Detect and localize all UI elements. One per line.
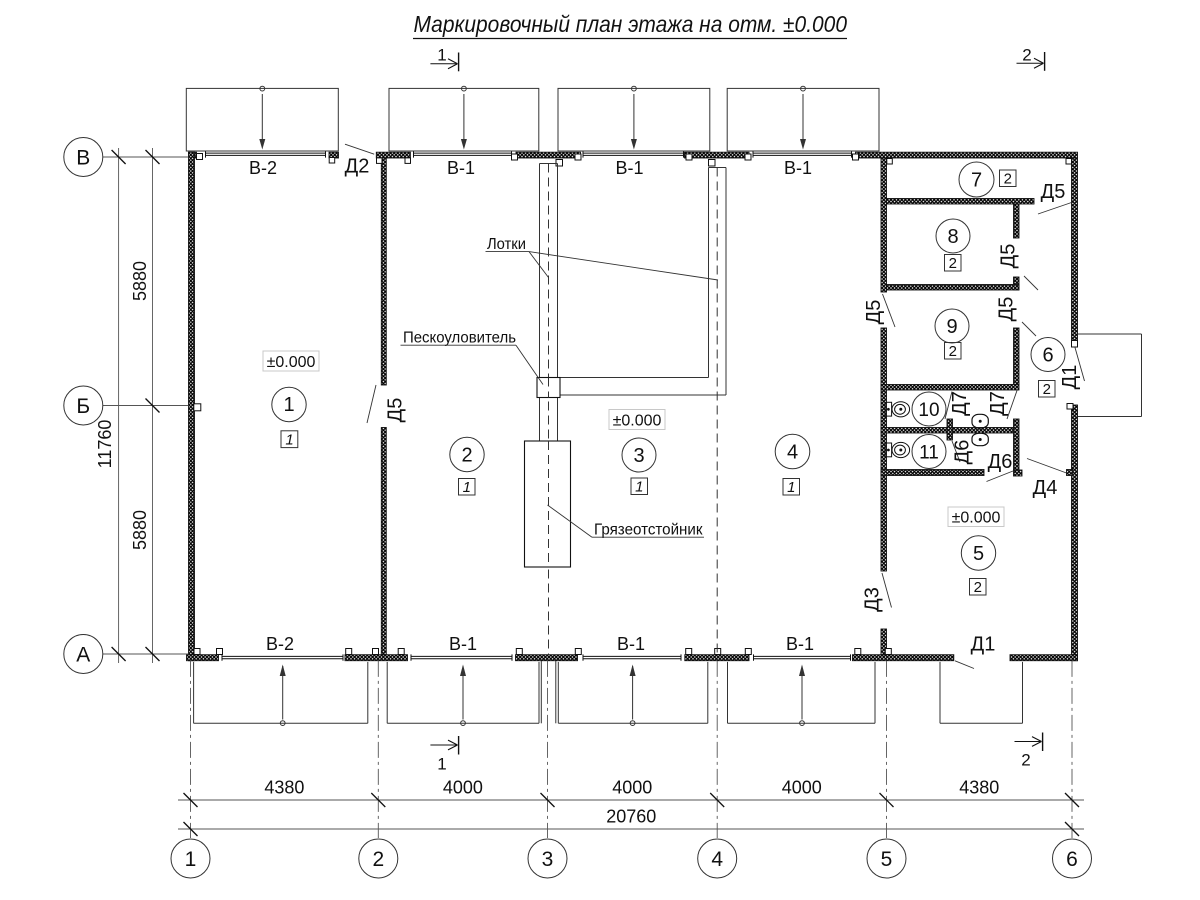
svg-text:В-1: В-1 bbox=[617, 634, 645, 654]
svg-text:3: 3 bbox=[542, 848, 554, 871]
svg-text:2: 2 bbox=[1043, 381, 1051, 398]
svg-text:6: 6 bbox=[1042, 345, 1053, 367]
svg-text:Д6: Д6 bbox=[952, 440, 974, 465]
svg-text:1: 1 bbox=[437, 46, 446, 65]
svg-text:Д5: Д5 bbox=[998, 244, 1020, 269]
svg-text:11760: 11760 bbox=[95, 420, 115, 469]
svg-text:В-1: В-1 bbox=[786, 634, 814, 654]
svg-text:4: 4 bbox=[711, 848, 723, 871]
svg-text:1: 1 bbox=[635, 479, 643, 496]
svg-text:4000: 4000 bbox=[782, 778, 822, 798]
svg-text:В-1: В-1 bbox=[784, 158, 812, 178]
svg-text:Д5: Д5 bbox=[996, 297, 1018, 322]
svg-text:1: 1 bbox=[185, 848, 197, 871]
svg-text:1: 1 bbox=[787, 479, 795, 496]
svg-text:1: 1 bbox=[437, 755, 446, 774]
svg-text:1: 1 bbox=[463, 479, 471, 496]
svg-text:4000: 4000 bbox=[612, 778, 652, 798]
svg-text:Пескоуловитель: Пескоуловитель bbox=[403, 330, 516, 347]
svg-text:6: 6 bbox=[1066, 848, 1078, 871]
svg-text:2: 2 bbox=[949, 255, 957, 272]
svg-text:Д4: Д4 bbox=[1033, 477, 1058, 499]
svg-text:В-1: В-1 bbox=[615, 158, 643, 178]
svg-text:В-2: В-2 bbox=[266, 634, 294, 654]
svg-text:7: 7 bbox=[971, 170, 982, 192]
svg-text:В-2: В-2 bbox=[249, 158, 277, 178]
svg-text:1: 1 bbox=[283, 394, 294, 416]
svg-text:2: 2 bbox=[1022, 46, 1031, 65]
svg-text:Д2: Д2 bbox=[345, 156, 370, 178]
svg-text:10: 10 bbox=[918, 400, 939, 421]
svg-text:Д5: Д5 bbox=[863, 300, 885, 325]
svg-text:4000: 4000 bbox=[443, 778, 483, 798]
svg-text:5880: 5880 bbox=[130, 261, 150, 301]
svg-text:Д6: Д6 bbox=[988, 451, 1013, 473]
svg-text:Д5: Д5 bbox=[385, 398, 407, 423]
svg-text:2: 2 bbox=[1021, 751, 1030, 770]
svg-text:9: 9 bbox=[946, 316, 957, 338]
svg-text:Лотки: Лотки bbox=[487, 236, 526, 253]
svg-text:Д7: Д7 bbox=[987, 391, 1009, 416]
svg-text:5: 5 bbox=[881, 848, 893, 871]
svg-text:1: 1 bbox=[285, 431, 293, 448]
svg-text:5: 5 bbox=[973, 543, 984, 565]
svg-text:В-1: В-1 bbox=[449, 634, 477, 654]
svg-text:5880: 5880 bbox=[130, 510, 150, 550]
svg-text:2: 2 bbox=[974, 579, 982, 596]
svg-text:±0.000: ±0.000 bbox=[267, 354, 316, 371]
svg-text:8: 8 bbox=[947, 226, 958, 248]
svg-text:4: 4 bbox=[787, 442, 798, 464]
svg-text:20760: 20760 bbox=[606, 807, 656, 827]
svg-text:Д1: Д1 bbox=[1059, 365, 1081, 390]
svg-text:11: 11 bbox=[919, 443, 939, 464]
svg-text:Б: Б bbox=[76, 395, 90, 418]
svg-text:3: 3 bbox=[633, 445, 644, 467]
svg-text:2: 2 bbox=[949, 343, 957, 360]
svg-text:±0.000: ±0.000 bbox=[952, 510, 1001, 527]
svg-text:Маркировочный план этажа на от: Маркировочный план этажа на отм. ±0.000 bbox=[414, 11, 848, 37]
svg-text:2: 2 bbox=[461, 445, 472, 467]
svg-text:Д3: Д3 bbox=[862, 587, 884, 612]
svg-text:В: В bbox=[76, 147, 90, 170]
svg-text:2: 2 bbox=[1004, 171, 1012, 188]
svg-text:В-1: В-1 bbox=[447, 158, 475, 178]
svg-text:А: А bbox=[76, 644, 90, 667]
svg-text:4380: 4380 bbox=[959, 778, 999, 798]
svg-text:Д7: Д7 bbox=[949, 391, 971, 416]
svg-text:Грязеотстойник: Грязеотстойник bbox=[594, 522, 703, 539]
svg-text:±0.000: ±0.000 bbox=[613, 413, 662, 430]
svg-text:Д5: Д5 bbox=[1041, 181, 1066, 203]
svg-text:Д1: Д1 bbox=[971, 634, 996, 656]
svg-text:4380: 4380 bbox=[264, 778, 304, 798]
svg-text:2: 2 bbox=[372, 848, 384, 871]
